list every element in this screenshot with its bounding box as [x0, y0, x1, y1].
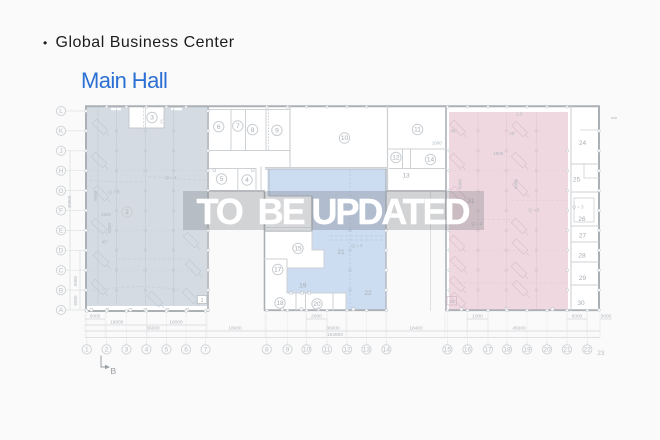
svg-text:12: 12	[343, 347, 351, 354]
svg-text:10: 10	[303, 347, 311, 354]
svg-text:6000: 6000	[73, 275, 78, 286]
svg-text:D: D	[59, 248, 64, 255]
svg-text:8: 8	[251, 127, 255, 134]
svg-text:6000: 6000	[514, 178, 519, 189]
svg-text:H: H	[59, 168, 64, 175]
svg-text:9: 9	[275, 128, 279, 135]
svg-text:Q = 3: Q = 3	[351, 243, 363, 248]
svg-text:13: 13	[402, 173, 410, 180]
svg-text:2,3: 2,3	[516, 112, 523, 117]
svg-text:23: 23	[597, 350, 605, 357]
svg-text:17: 17	[484, 347, 492, 354]
svg-text:E: E	[59, 228, 64, 235]
svg-text:28: 28	[578, 253, 586, 260]
svg-text:K: K	[59, 128, 64, 135]
svg-text:29: 29	[579, 275, 587, 282]
svg-text:Q = 3: Q = 3	[165, 175, 177, 180]
svg-text:1: 1	[201, 298, 204, 304]
svg-text:18000: 18000	[169, 320, 183, 326]
svg-text:22: 22	[584, 347, 592, 354]
svg-text:19: 19	[299, 283, 307, 290]
svg-text:40000: 40000	[67, 195, 72, 208]
svg-text:6000: 6000	[572, 314, 583, 320]
svg-text:1900: 1900	[493, 151, 504, 156]
svg-text:45°: 45°	[102, 240, 109, 245]
svg-text:153800: 153800	[327, 332, 343, 338]
svg-text:7: 7	[236, 123, 240, 130]
svg-text:6: 6	[217, 124, 221, 131]
svg-text:2: 2	[125, 209, 129, 216]
svg-text:G: G	[58, 188, 63, 195]
svg-text:27: 27	[579, 233, 587, 240]
svg-text:15: 15	[444, 347, 452, 354]
svg-text:25: 25	[573, 177, 581, 184]
svg-text:5: 5	[220, 176, 224, 183]
svg-text:18400: 18400	[409, 326, 423, 332]
svg-text:Q = 3: Q = 3	[108, 190, 120, 195]
svg-text:11: 11	[324, 347, 331, 354]
svg-text:18: 18	[503, 347, 511, 354]
svg-text:4: 4	[245, 177, 249, 184]
svg-text:20: 20	[313, 301, 321, 308]
svg-text:2: 2	[105, 347, 109, 354]
svg-text:3000: 3000	[601, 314, 612, 320]
svg-text:B: B	[59, 287, 63, 294]
svg-text:20: 20	[543, 347, 551, 354]
svg-text:J: J	[59, 148, 62, 155]
svg-text:5: 5	[165, 347, 169, 354]
svg-text:6000: 6000	[458, 178, 463, 189]
svg-text:13: 13	[363, 347, 371, 354]
svg-text:18: 18	[276, 300, 284, 307]
svg-text:4: 4	[145, 347, 149, 354]
svg-text:16: 16	[464, 347, 472, 354]
svg-text:10: 10	[341, 135, 349, 142]
svg-text:C: C	[59, 267, 64, 274]
svg-text:6000: 6000	[90, 314, 101, 320]
svg-text:L: L	[59, 108, 63, 115]
svg-text:21: 21	[337, 249, 345, 256]
svg-text:22: 22	[364, 290, 372, 297]
svg-text:6000: 6000	[73, 295, 78, 306]
svg-text:18000: 18000	[228, 326, 242, 332]
svg-text:6000: 6000	[107, 222, 112, 233]
svg-text:36000: 36000	[146, 326, 160, 332]
svg-text:1000: 1000	[432, 141, 443, 146]
svg-text:8: 8	[265, 347, 269, 354]
svg-text:Q = 3: Q = 3	[572, 205, 584, 210]
svg-text:2900: 2900	[311, 314, 322, 320]
svg-text:19: 19	[523, 347, 531, 354]
svg-text:6: 6	[184, 347, 188, 354]
svg-text:B: B	[111, 366, 117, 376]
svg-text:9: 9	[286, 347, 290, 354]
svg-text:F: F	[59, 208, 63, 215]
svg-text:30: 30	[577, 300, 585, 307]
svg-text:3: 3	[125, 347, 129, 354]
svg-text:Q = 3: Q = 3	[528, 208, 540, 213]
svg-text:12: 12	[392, 155, 400, 162]
svg-text:11: 11	[414, 127, 421, 134]
svg-text:14: 14	[427, 157, 435, 164]
svg-text:32: 32	[449, 299, 455, 304]
svg-text:24: 24	[579, 140, 587, 147]
svg-text:45000: 45000	[512, 326, 526, 332]
svg-text:A: A	[59, 307, 64, 314]
svg-text:15: 15	[294, 246, 302, 253]
svg-text:45°: 45°	[509, 131, 516, 136]
svg-text:1000: 1000	[472, 314, 483, 320]
svg-text:17: 17	[274, 267, 282, 274]
svg-text:21: 21	[563, 347, 571, 354]
svg-text:26: 26	[578, 216, 586, 223]
svg-text:14: 14	[383, 347, 391, 354]
svg-text:18000: 18000	[110, 320, 124, 326]
svg-text:3: 3	[150, 115, 154, 122]
svg-text:7: 7	[204, 347, 208, 354]
svg-text:36000: 36000	[326, 326, 340, 332]
svg-text:2600: 2600	[101, 212, 112, 217]
svg-text:45°: 45°	[450, 129, 457, 134]
svg-text:9000: 9000	[93, 190, 98, 201]
svg-text:1: 1	[85, 347, 89, 354]
